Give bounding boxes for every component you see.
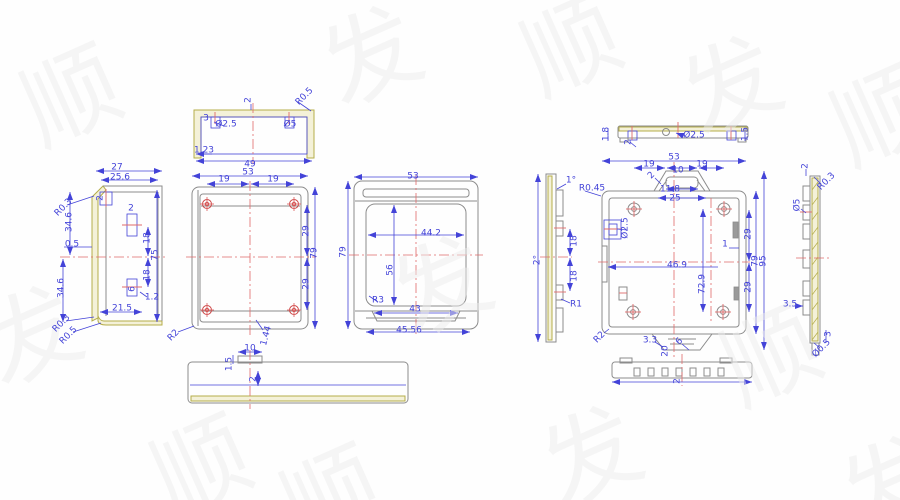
dim-label: 2 xyxy=(97,195,106,201)
screw-hole xyxy=(200,197,214,211)
view-front xyxy=(178,176,316,337)
dim-label: 27 xyxy=(111,164,122,173)
screw-hole xyxy=(200,303,214,317)
dim-label: 29 xyxy=(303,278,312,289)
dim-label: 18 xyxy=(144,232,153,243)
dim-label: 45.56 xyxy=(396,327,422,336)
dim-label: 53 xyxy=(242,169,253,178)
dim-label: 1.23 xyxy=(194,147,214,156)
dim-label: 3.3 xyxy=(643,337,657,346)
dim-label: Ø2.5 xyxy=(622,217,631,238)
dim-label: 2 xyxy=(674,378,683,384)
dim-label: Ø2.5 xyxy=(215,121,236,130)
dim-label: 10 xyxy=(672,167,683,176)
screw-hole xyxy=(287,303,301,317)
dim-label: 19 xyxy=(643,161,654,170)
dim-label: 75 xyxy=(152,249,161,260)
dim-label: 1.5 xyxy=(226,357,235,371)
dim-label: 1 xyxy=(722,241,728,250)
screw-hole xyxy=(287,197,301,211)
dim-label: Ø5 xyxy=(284,121,297,130)
dim-label: 18 xyxy=(571,270,580,281)
dim-label: 3.5 xyxy=(783,301,797,310)
dim-label: 25.6 xyxy=(110,174,130,183)
dim-label: 25 xyxy=(669,195,680,204)
dim-label: Ø2.5 xyxy=(683,132,704,141)
dim-label: 1° xyxy=(566,177,576,186)
dim-label: 2° xyxy=(534,255,543,265)
dim-label: 79 xyxy=(340,246,349,257)
dim-label: 2 xyxy=(625,139,634,145)
screw-boss xyxy=(716,201,732,217)
dim-label: Ø5 xyxy=(794,199,803,212)
dim-label: 1.5 xyxy=(742,127,751,141)
view-side-mid xyxy=(538,174,601,342)
dim-label: 53 xyxy=(668,154,679,163)
dim-label: 2 xyxy=(245,97,254,103)
dim-label: 79 xyxy=(311,247,320,258)
dim-label: 95 xyxy=(760,255,769,266)
cad-drawing-canvas: 顺 发 顺 发 顺 发 顺 发 顺 发 顺 发 xyxy=(0,0,900,500)
dim-label: 29 xyxy=(303,225,312,236)
screw-boss xyxy=(625,304,641,320)
dim-label: 20 xyxy=(662,345,671,356)
dim-label: R3 xyxy=(372,297,384,306)
dim-label: 56 xyxy=(387,264,396,275)
vent-slot xyxy=(733,222,738,238)
dim-label: 46.9 xyxy=(667,262,687,271)
dim-label: 43 xyxy=(409,306,420,315)
dim-label: 2 xyxy=(250,376,259,382)
dim-label: 2 xyxy=(802,163,811,169)
dim-label: R1 xyxy=(570,301,582,310)
dim-label: 34.6 xyxy=(66,212,75,232)
dim-label: 18 xyxy=(571,235,580,246)
dim-label: 29 xyxy=(745,281,754,292)
dim-label: 3 xyxy=(825,331,834,337)
dim-label: 72.9 xyxy=(699,274,708,294)
dim-label: 10 xyxy=(244,345,255,354)
dim-label: 19 xyxy=(267,176,278,185)
dim-label: 18 xyxy=(144,269,153,280)
dim-label: 1.2 xyxy=(145,294,159,303)
dim-label: 6 xyxy=(129,286,138,292)
dim-label: 19 xyxy=(696,161,707,170)
dim-label: R0.45 xyxy=(579,185,605,194)
dim-label: 44.2 xyxy=(421,230,441,239)
dim-label: 0.5 xyxy=(65,241,79,250)
dim-label: 53 xyxy=(407,173,418,182)
dim-label: 19 xyxy=(218,176,229,185)
dim-label: 1.8 xyxy=(603,127,612,141)
dim-label: 2 xyxy=(128,205,134,214)
dim-label: 3 xyxy=(203,115,209,124)
dim-label: 34.6 xyxy=(58,278,67,298)
screw-boss xyxy=(626,201,642,217)
dim-label: 29 xyxy=(745,228,754,239)
dim-label: 21.5 xyxy=(112,305,132,314)
